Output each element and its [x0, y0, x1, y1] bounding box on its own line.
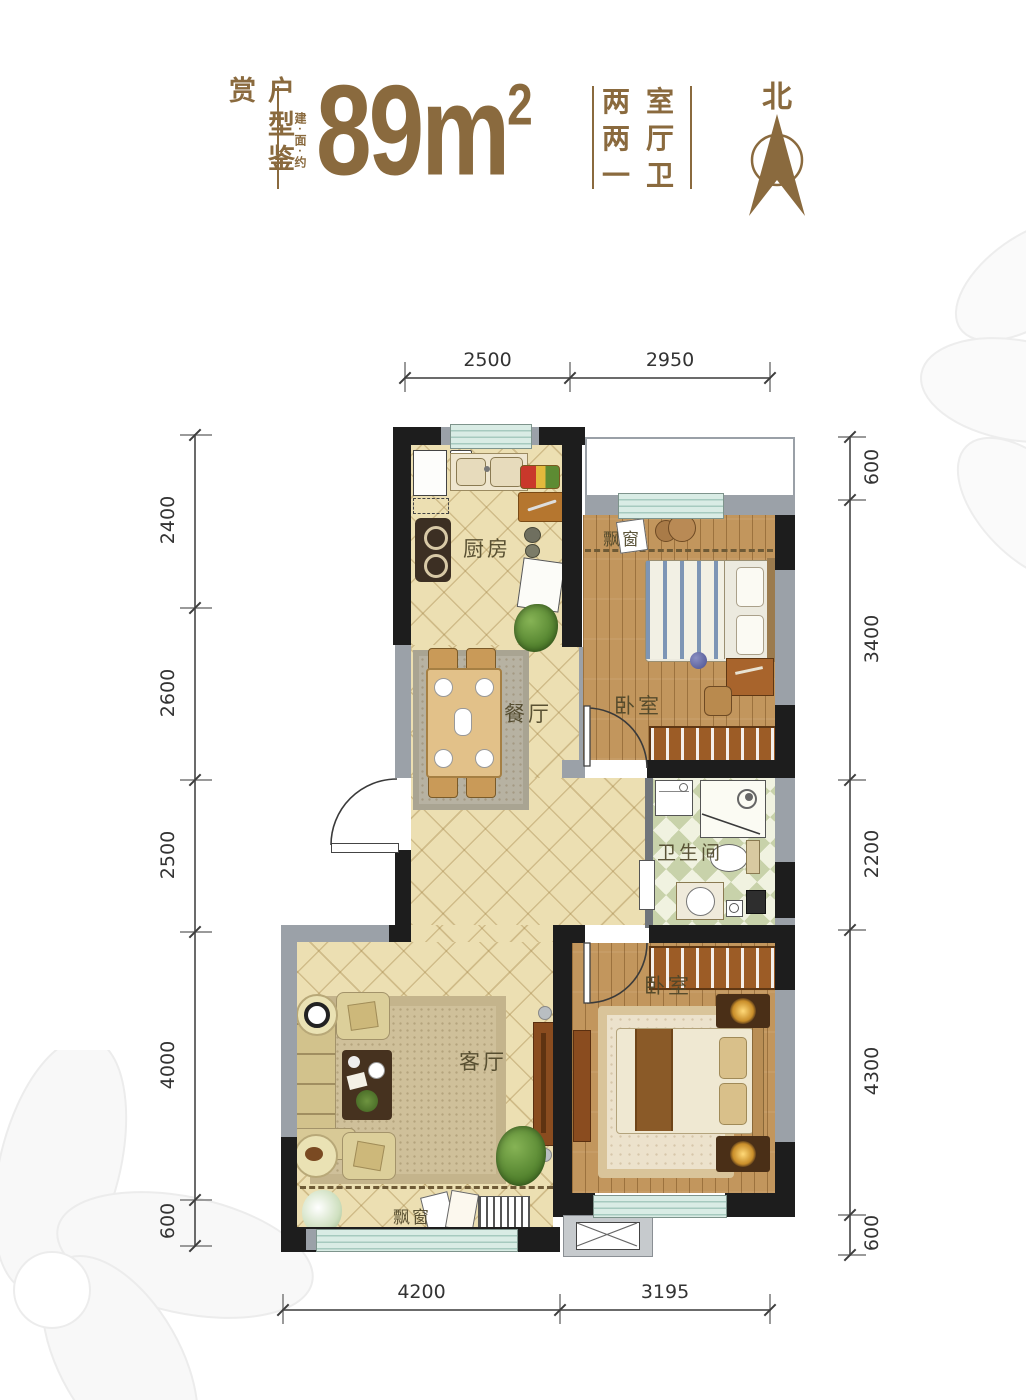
room-label-bedroom-bottom: 卧室 — [628, 970, 708, 1000]
floor-plan-page: 户型鉴赏 建·面·约 89m2 两室 两厅 一卫 北 2500 2950 — [0, 0, 1026, 1400]
bedroom-top-door-leaf — [584, 706, 590, 766]
room-label-bedroom-top: 卧室 — [598, 690, 678, 720]
room-label-bay-window-bottom: 飘窗 — [372, 1203, 452, 1228]
room-label-bay-window-top: 飘窗 — [582, 525, 662, 550]
bedroom-bottom-door-leaf — [584, 943, 590, 1003]
room-label-living: 客厅 — [443, 1046, 523, 1076]
shower-door-line — [702, 814, 760, 834]
entry-door-arc — [331, 779, 397, 845]
room-label-kitchen: 厨房 — [447, 533, 527, 563]
room-label-dining: 餐厅 — [488, 698, 568, 728]
room-label-bathroom: 卫生间 — [638, 838, 742, 865]
ac-platform-cross — [577, 1223, 637, 1246]
